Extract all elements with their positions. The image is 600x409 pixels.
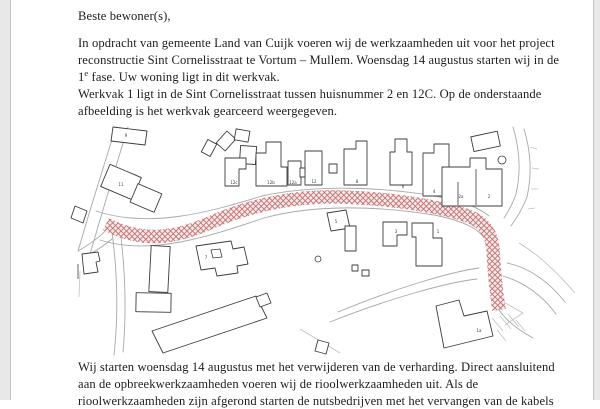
- house-number-label: 11: [118, 182, 124, 187]
- house-number-label: 12b: [267, 180, 275, 185]
- house-number-label: 12c: [230, 180, 237, 185]
- house-number-label: 3: [395, 229, 398, 234]
- house-number-label: 2: [488, 194, 491, 199]
- werkvak-map-figure: 91112c12b12a128642a253171a: [0, 0, 600, 400]
- house-number-label: 12a: [289, 180, 297, 185]
- house-number-label: 12: [311, 179, 317, 184]
- house-number-label: 5: [335, 219, 338, 224]
- house-number-label: 1a: [477, 328, 483, 333]
- house-number-label: 2a: [459, 194, 465, 199]
- house-number-label: 4: [433, 189, 436, 194]
- house-number-label: 6: [402, 184, 405, 189]
- house-number-label: 1: [437, 229, 440, 234]
- house-number-label: 9: [125, 133, 128, 138]
- letter-page: { "page": { "paper_color": "#ffffff", "m…: [0, 0, 600, 400]
- house-number-label: 7: [205, 255, 208, 260]
- house-number-label: 8: [356, 179, 359, 184]
